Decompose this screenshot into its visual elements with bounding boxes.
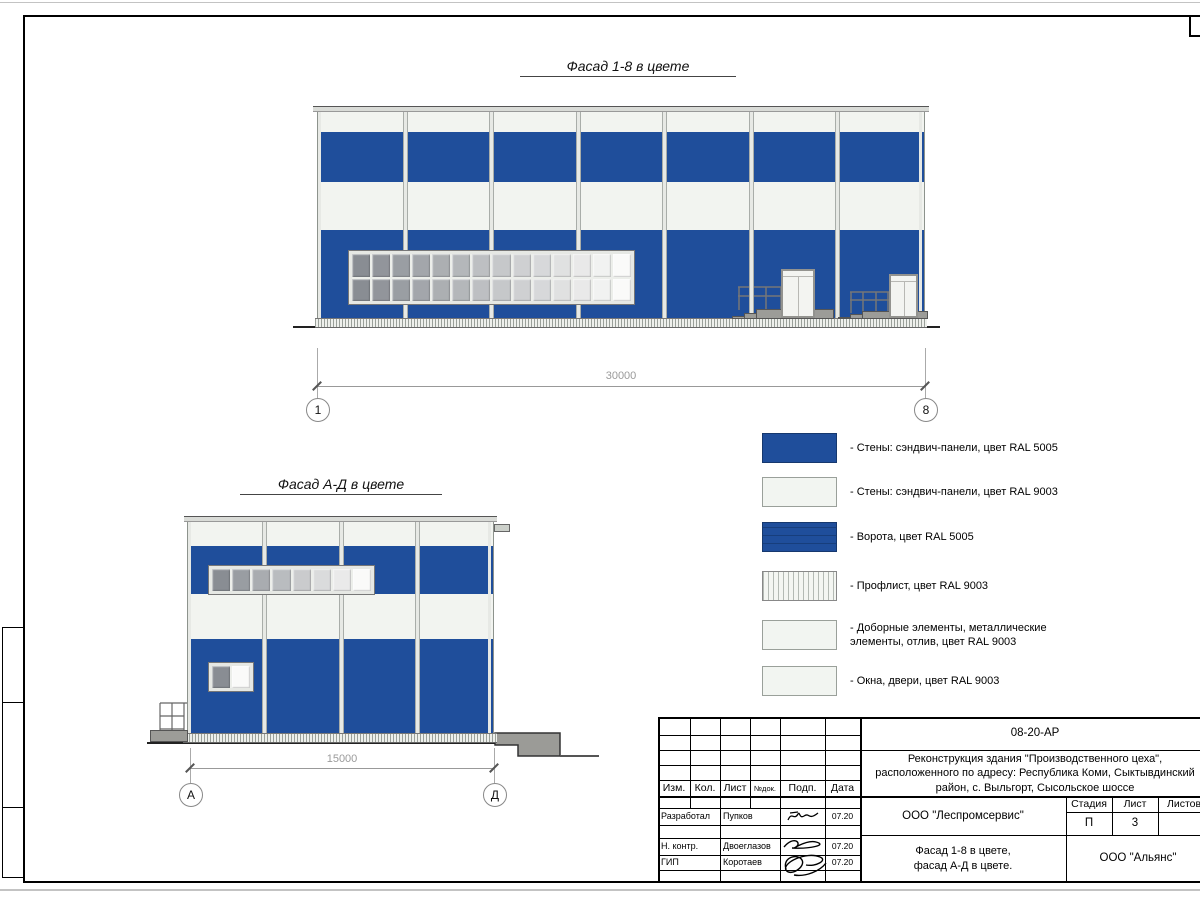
window-pane [333,569,351,591]
titleblock-line [658,825,860,826]
dimension-value: 15000 [190,753,494,765]
wall-mullion [835,111,840,319]
sheets-label: Листов [1158,796,1200,812]
window-pane [513,279,531,302]
wall-corner-column [919,111,922,319]
project-description: Реконструкция здания "Производственного … [862,751,1200,796]
stage-label: Стадия [1066,796,1112,812]
window-pane [412,279,430,302]
entrance-door [781,269,815,318]
window-pane [392,254,410,277]
wall-panel-blue [318,157,924,183]
sheet-name-line2: фасад А-Д в цвете. [860,859,1066,874]
frame-side-column [2,627,3,877]
facade-1-8-parapet [313,106,929,112]
wall-panel-white [318,206,924,231]
window-pane [533,279,551,302]
row-role: Н. контр. [658,838,720,855]
window-pane [573,254,591,277]
window-pane [432,279,450,302]
window-pane [452,254,470,277]
sheet-value: 3 [1112,812,1158,835]
row-role: ГИП [658,855,720,870]
col-list: Лист [720,780,750,796]
window-glazing-grid [212,666,250,688]
titleblock-line [658,765,860,766]
row-name: Коротаев [720,855,780,870]
window-pane [272,569,290,591]
window-pane [553,279,571,302]
wall-panel-blue [318,132,924,158]
frame-side-line [2,877,23,878]
dimension-line [190,768,494,769]
window-pane [232,666,250,688]
legend-label: - Ворота, цвет RAL 5005 [850,530,974,544]
col-izm: Изм. [658,780,690,796]
facade-1-8-title: Фасад 1-8 в цвете [520,58,736,77]
entrance-door [889,274,918,318]
legend-swatch [762,620,837,650]
window-pane [573,279,591,302]
door-railing [736,283,786,311]
frame-side-line [2,807,23,808]
wall-mullion [339,521,344,736]
legend-item: - Доборные элементы, металлические элеме… [762,620,1047,650]
legend-item: - Профлист, цвет RAL 9003 [762,571,988,601]
sheet-label: Лист [1112,796,1158,812]
axis-marker-8: 8 [914,398,938,422]
col-kol: Кол. [690,780,720,796]
titleblock-line [658,735,860,736]
window-glazing-grid [352,254,631,301]
window-pane [313,569,331,591]
axis-marker-d: Д [483,783,507,807]
legend-item: - Окна, двери, цвет RAL 9003 [762,666,999,696]
window-pane [392,279,410,302]
ribbon-window [209,566,374,594]
wall-mullion [262,521,267,736]
window-pane [613,254,631,277]
col-podp: Подп. [780,780,825,796]
sheet-name-line1: Фасад 1-8 в цвете, [860,844,1066,859]
facade-1-8-building [317,110,925,320]
col-data: Дата [825,780,860,796]
window-pane [372,279,390,302]
window-pane [593,254,611,277]
foundation-step [494,732,600,760]
wall-mullion [415,521,420,736]
window-pane [232,569,250,591]
frame-top [23,15,1200,17]
legend-label: - Профлист, цвет RAL 9003 [850,579,988,593]
door-step [850,314,863,319]
customer-org: ООО "Альянс" [1066,835,1200,881]
window-pane [472,254,490,277]
window-pane [412,254,430,277]
window-pane [513,254,531,277]
window-pane [492,279,510,302]
frame-corner-box [1189,15,1200,37]
drawing-sheet: Фасад 1-8 в цвете [0,0,1200,900]
facade-1-8-plinth [315,318,927,328]
window-pane [593,279,611,302]
facade-a-d-parapet [184,516,497,522]
window-pane [553,254,571,277]
window-pane [352,279,370,302]
legend-swatch [762,477,837,507]
window-pane [452,279,470,302]
project-line2: расположенного по адресу: Республика Ком… [862,766,1200,781]
window-pane [613,279,631,302]
legend-swatch [762,571,837,601]
wall-corner-column [188,521,191,736]
window-pane [492,254,510,277]
row-name: Двоеглазов [720,838,780,855]
sheet-top-edge [0,2,1200,3]
wall-mullion [749,111,754,319]
dimension-line [317,386,925,387]
window-glazing-grid [212,569,371,591]
wall-corner-column [318,111,321,319]
door-step [732,316,745,319]
doc-number: 08-20-АР [860,717,1200,750]
legend-item: - Ворота, цвет RAL 5005 [762,522,974,552]
facade-a-d-plinth [183,733,497,743]
window-pane [352,254,370,277]
design-org: ООО "Леспромсервис" [860,797,1066,835]
facade-a-d-title: Фасад А-Д в цвете [240,476,442,495]
frame-side-line [2,627,23,628]
frame-bottom [23,881,1200,883]
wall-corner-column [488,521,491,736]
small-window [209,663,253,691]
door-step [838,317,851,319]
window-pane [293,569,311,591]
legend-swatch [762,433,837,463]
signature-icon [784,809,822,824]
facade-a-d-building [187,520,494,737]
window-pane [432,254,450,277]
legend-item: - Стены: сэндвич-панели, цвет RAL 9003 [762,477,1058,507]
frame-left [23,15,25,883]
axis-marker-1: 1 [306,398,330,422]
ribbon-window [349,251,634,304]
legend-label: - Стены: сэндвич-панели, цвет RAL 9003 [850,485,1058,499]
roof-drain [494,524,510,532]
legend-item: - Стены: сэндвич-панели, цвет RAL 5005 [762,433,1058,463]
legend-label: - Стены: сэндвич-панели, цвет RAL 5005 [850,441,1058,455]
window-pane [372,254,390,277]
row-role: Разработал [658,808,720,825]
frame-side-line [2,702,23,703]
legend-swatch [762,666,837,696]
legend-label: - Окна, двери, цвет RAL 9003 [850,674,999,688]
window-pane [472,279,490,302]
legend-label: - Доборные элементы, металлические элеме… [850,621,1047,649]
door-step [744,313,757,319]
window-pane [533,254,551,277]
window-pane [252,569,270,591]
project-line3: район, с. Выльгорт, Сысольское шоссе [862,781,1200,796]
sheet-bottom-edge [0,889,1200,891]
signature-icon [776,833,832,879]
window-pane [353,569,371,591]
project-line1: Реконструкция здания "Производственного … [862,752,1200,767]
axis-marker-a: А [179,783,203,807]
row-date: 07.20 [825,808,860,825]
dimension-value: 30000 [317,370,925,382]
sheet-name: Фасад 1-8 в цвете, фасад А-Д в цвете. [860,836,1066,881]
stage-value: П [1066,812,1112,835]
wall-mullion [662,111,667,319]
window-pane [212,569,230,591]
wall-panel-white [318,111,924,133]
wall-panel-white [318,182,924,207]
legend-swatch [762,522,837,552]
extension-line [925,348,926,400]
col-ndoc: №док. [750,780,780,796]
window-pane [212,666,230,688]
row-name: Пупков [720,808,780,825]
ladder-base [150,730,188,742]
